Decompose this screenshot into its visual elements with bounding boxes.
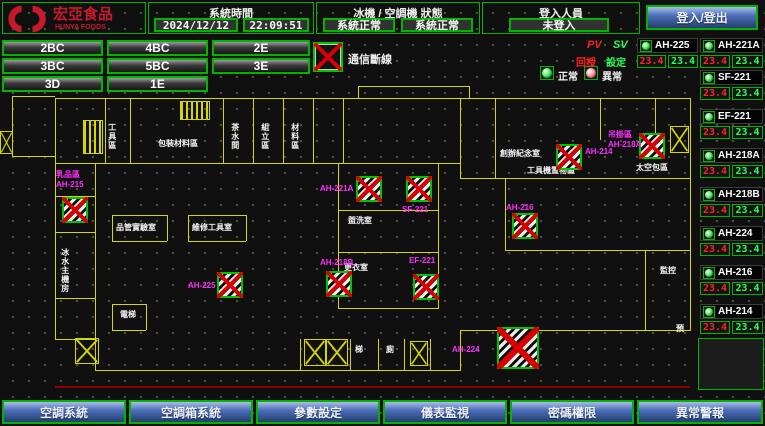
status-led-icon — [703, 40, 715, 52]
hunya-logo-icon — [7, 5, 49, 38]
wall-segment — [112, 215, 167, 216]
ahu-status: 系統正常 — [401, 18, 473, 32]
logo-subtitle: HUNYA FOODS — [55, 24, 106, 31]
unit-row-ah221a[interactable]: AH-221A — [700, 38, 763, 53]
vent-grille-icon — [83, 120, 103, 154]
wall-segment — [283, 98, 284, 163]
wall-segment — [338, 308, 439, 309]
wall-segment — [130, 98, 131, 163]
wall-segment — [460, 330, 690, 331]
room-label: 茶水間 — [230, 123, 239, 150]
sv-value: 23.4 — [732, 165, 763, 178]
offline-unit-label: SF-221 — [402, 205, 428, 215]
room-label: 預 — [676, 325, 684, 334]
offline-unit-icon[interactable] — [62, 197, 88, 223]
room-label: 梯 — [355, 346, 363, 355]
offline-unit-icon[interactable] — [556, 144, 582, 170]
damper-icon — [75, 338, 99, 364]
damper-icon — [326, 339, 348, 366]
wall-segment — [378, 339, 379, 370]
room-label: 品管實驗室 — [116, 224, 156, 233]
system-time-panel: 系統時間 2024/12/12 22:09:51 — [148, 2, 314, 34]
wall-segment — [223, 98, 224, 163]
offline-unit-icon[interactable] — [512, 213, 538, 239]
offline-unit-label: AH-216 — [506, 203, 534, 213]
wall-segment — [460, 98, 461, 178]
wall-segment — [430, 339, 431, 370]
unit-row-sf-221[interactable]: SF-221 — [700, 70, 763, 85]
sv-value: 23.4 — [732, 87, 763, 100]
floor-button-2e[interactable]: 2E — [212, 40, 310, 56]
normal-label: 正常 — [558, 68, 578, 83]
wall-segment — [112, 241, 167, 242]
nav-alarm[interactable]: 異常警報 — [637, 400, 763, 424]
wall-segment — [313, 98, 314, 163]
normal-led-icon — [540, 66, 554, 80]
damper-icon — [670, 126, 689, 153]
wall-segment — [300, 339, 301, 370]
status-led-icon — [703, 150, 715, 162]
wall-segment — [246, 215, 247, 241]
wall-segment — [12, 156, 55, 157]
logo-panel: 宏亞食品 HUNYA FOODS — [2, 2, 146, 34]
comm-loss-label: 通信斷線 — [348, 51, 392, 67]
nav-password-auth[interactable]: 密碼權限 — [510, 400, 634, 424]
wall-segment — [12, 96, 55, 97]
unit-row-ah-224[interactable]: AH-224 — [700, 226, 763, 241]
unit-list-empty-panel — [698, 338, 764, 390]
wall-segment — [460, 178, 690, 179]
wall-segment — [690, 98, 691, 331]
room-label: 創辦紀念室 — [500, 150, 540, 159]
nav-parameter-settings[interactable]: 參數設定 — [256, 400, 380, 424]
wall-segment — [167, 215, 168, 241]
wall-segment — [55, 298, 95, 299]
time-display: 22:09:51 — [243, 18, 309, 32]
floor-button-2bc[interactable]: 2BC — [2, 40, 103, 56]
pv-value: 23.4 — [700, 282, 730, 295]
unit-row-ef-221[interactable]: EF-221 — [700, 109, 763, 124]
offline-unit-icon[interactable] — [217, 272, 243, 298]
logo-title: 宏亞食品 — [53, 7, 113, 22]
wall-segment — [95, 240, 96, 339]
sv-value: 23.4 — [668, 55, 698, 68]
sv-value: 23.4 — [732, 321, 763, 334]
wall-segment — [112, 215, 113, 241]
room-label: 盥洗室 — [348, 217, 372, 226]
unit-row-ah225[interactable]: AH-225 — [637, 38, 698, 53]
wall-segment — [253, 98, 254, 163]
room-label: 材料區 — [290, 123, 299, 150]
pv-value: 23.4 — [700, 55, 730, 68]
wall-segment — [112, 330, 146, 331]
sv-label: SV — [613, 39, 628, 51]
damper-icon — [0, 131, 13, 154]
pv-value: 23.4 — [700, 126, 730, 139]
login-logout-button[interactable]: 登入/登出 — [646, 5, 758, 30]
wall-segment — [404, 339, 405, 370]
room-label: 電梯 — [120, 311, 136, 320]
pv-value: 23.4 — [700, 87, 730, 100]
nav-meter-monitor[interactable]: 儀表監視 — [383, 400, 507, 424]
room-label: 工具區 — [107, 123, 116, 150]
wall-segment — [112, 304, 146, 305]
floor-button-5bc[interactable]: 5BC — [107, 58, 208, 74]
floor-button-3e[interactable]: 3E — [212, 58, 310, 74]
status-led-icon — [703, 189, 715, 201]
wall-segment — [645, 250, 646, 330]
wall-segment — [55, 163, 460, 164]
abnormal-label: 異常 — [602, 68, 622, 83]
sv-row-label: 設定 — [606, 54, 626, 69]
room-label: 監控 — [660, 267, 676, 276]
status-led-icon — [703, 267, 715, 279]
pv-value: 23.4 — [700, 243, 730, 256]
room-label: 組立區 — [260, 123, 269, 150]
room-label: 維修工具室 — [192, 224, 232, 233]
pv-value: 23.4 — [700, 165, 730, 178]
login-status: 未登入 — [509, 18, 609, 32]
date-display: 2024/12/12 — [154, 18, 238, 32]
offline-unit-label: EF-221 — [409, 256, 435, 266]
unit-row-ah-218b[interactable]: AH-218B — [700, 187, 763, 202]
wall-segment — [505, 250, 690, 251]
floor-button-1e[interactable]: 1E — [107, 76, 208, 92]
offline-unit-label: 吊掛區AH-218A — [608, 130, 641, 149]
offline-unit-label: AH-221A — [320, 184, 353, 194]
room-label: 冰水主機房 — [60, 248, 69, 293]
wall-segment — [495, 98, 496, 178]
damper-icon — [304, 339, 326, 366]
unit-row-ah-218a[interactable]: AH-218A — [700, 148, 763, 163]
wall-segment — [600, 98, 601, 140]
offline-unit-label: AH-224 — [452, 345, 480, 355]
pv-row-label: 回授 — [576, 54, 596, 69]
offline-unit-label: 乳品區AH-215 — [56, 170, 84, 189]
pv-value: 23.4 — [700, 204, 730, 217]
wall-segment — [105, 98, 106, 163]
offline-unit-label: AH-218B — [320, 258, 353, 268]
sv-value: 23.4 — [732, 243, 763, 256]
chiller-status: 系統正常 — [323, 18, 395, 32]
offline-unit-icon[interactable] — [406, 176, 432, 202]
status-led-icon — [703, 72, 715, 84]
wall-segment — [343, 98, 344, 163]
comm-loss-icon — [313, 42, 343, 72]
wall-segment — [188, 241, 246, 242]
floor-button-3d[interactable]: 3D — [2, 76, 103, 92]
wall-segment — [350, 339, 351, 370]
wall-segment — [188, 215, 189, 241]
hmi-screen: 工具區包裝材料區茶水間組立區材料區創辦紀念室工具機置物區太空包區品管實驗室維修工… — [0, 0, 765, 426]
offline-unit-icon[interactable] — [413, 274, 439, 300]
wall-segment — [55, 98, 691, 99]
room-label: 廁 — [386, 346, 394, 355]
wall-segment — [95, 370, 461, 371]
sv-value: 23.4 — [732, 204, 763, 217]
nav-hvac-system[interactable]: 空調系統 — [2, 400, 126, 424]
room-label: 太空包區 — [636, 164, 668, 173]
wall-segment — [188, 215, 246, 216]
nav-ahu-system[interactable]: 空調箱系統 — [129, 400, 253, 424]
offline-unit-icon[interactable] — [639, 133, 665, 159]
sv-value: 23.4 — [732, 55, 763, 68]
status-led-icon — [703, 111, 715, 123]
offline-unit-icon[interactable] — [356, 176, 382, 202]
status-led-icon — [703, 306, 715, 318]
sv-value: 23.4 — [732, 282, 763, 295]
sv-value: 23.4 — [732, 126, 763, 139]
room-label: 包裝材料區 — [158, 140, 198, 149]
damper-icon — [410, 341, 428, 366]
offline-unit-icon[interactable] — [497, 327, 539, 369]
floor-button-4bc[interactable]: 4BC — [107, 40, 208, 56]
floor-button-3bc[interactable]: 3BC — [2, 58, 103, 74]
vent-grille-icon — [180, 101, 210, 120]
status-led-icon — [703, 228, 715, 240]
status-led-icon — [640, 40, 652, 52]
machine-status-panel: 冰機 / 空調機 狀態 系統正常 系統正常 — [316, 2, 480, 34]
wall-segment — [55, 98, 56, 340]
pv-value: 23.4 — [637, 55, 666, 68]
pv-label: PV — [587, 39, 602, 51]
wall-segment — [55, 232, 95, 233]
wall-segment — [146, 304, 147, 330]
wall-segment — [358, 86, 470, 87]
unit-row-ah-214[interactable]: AH-214 — [700, 304, 763, 319]
wall-segment — [112, 304, 113, 330]
red-line — [55, 386, 690, 388]
wall-segment — [338, 252, 438, 253]
wall-segment — [95, 163, 96, 240]
offline-unit-label: AH-225 — [188, 281, 216, 291]
unit-row-ah-216[interactable]: AH-216 — [700, 265, 763, 280]
login-panel: 登入人員 未登入 — [482, 2, 640, 34]
offline-unit-icon[interactable] — [326, 271, 352, 297]
wall-segment — [505, 178, 506, 250]
pv-value: 23.4 — [700, 321, 730, 334]
